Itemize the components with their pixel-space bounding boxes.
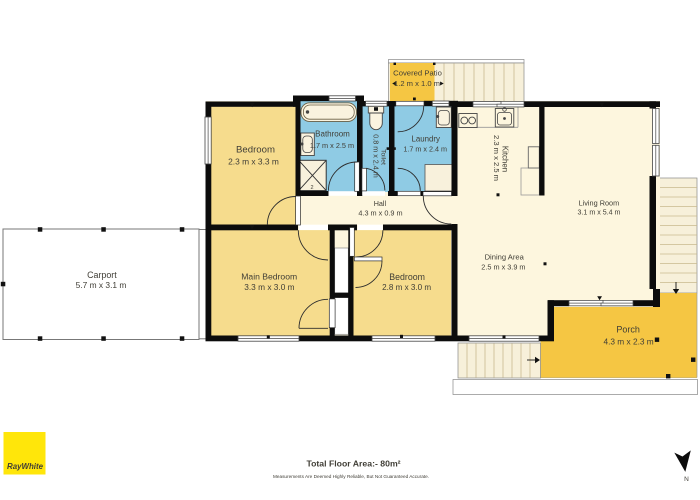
svg-text:2.3 m x 3.3 m: 2.3 m x 3.3 m — [228, 157, 279, 167]
svg-text:5.7 m x 3.1 m: 5.7 m x 3.1 m — [76, 280, 127, 290]
svg-text:N: N — [684, 476, 689, 483]
svg-text:Bedroom: Bedroom — [236, 144, 275, 155]
svg-text:Carport: Carport — [87, 270, 117, 280]
svg-text:1.2 m x 1.0 m: 1.2 m x 1.0 m — [394, 79, 440, 88]
svg-text:2: 2 — [310, 185, 313, 191]
svg-text:2.3 m x 2.5 m: 2.3 m x 2.5 m — [492, 135, 501, 181]
svg-text:3.1 m x 5.4 m: 3.1 m x 5.4 m — [578, 209, 621, 217]
svg-text:Toilet: Toilet — [380, 149, 387, 165]
svg-text:Dining Area: Dining Area — [485, 253, 525, 262]
svg-text:Total Floor Area:- 80m²: Total Floor Area:- 80m² — [306, 459, 400, 469]
svg-text:Measurements Are Deemed Highly: Measurements Are Deemed Highly Reliable,… — [273, 474, 429, 479]
svg-text:Bedroom: Bedroom — [389, 272, 425, 282]
svg-text:2.8 m x 3.0 m: 2.8 m x 3.0 m — [382, 283, 431, 292]
svg-text:4.3 m x 0.9 m: 4.3 m x 0.9 m — [358, 209, 402, 218]
svg-text:Porch: Porch — [616, 325, 640, 335]
svg-text:Bathroom: Bathroom — [315, 130, 350, 139]
svg-text:Main Bedroom: Main Bedroom — [241, 272, 297, 282]
svg-text:Living Room: Living Room — [579, 199, 620, 208]
svg-text:1.7 m x 2.4 m: 1.7 m x 2.4 m — [403, 145, 447, 154]
svg-text:RayWhite: RayWhite — [7, 462, 44, 471]
svg-text:Kitchen: Kitchen — [501, 146, 510, 172]
svg-text:0.8 m x 2.4 m: 0.8 m x 2.4 m — [371, 134, 380, 178]
svg-text:4.3 m x 2.3 m: 4.3 m x 2.3 m — [603, 337, 653, 347]
svg-text:Covered Patio: Covered Patio — [393, 69, 442, 78]
svg-text:Laundry: Laundry — [411, 134, 440, 143]
svg-text:3.3 m x 3.0 m: 3.3 m x 3.0 m — [244, 282, 294, 292]
svg-text:1.7 m x 2.5 m: 1.7 m x 2.5 m — [310, 141, 354, 150]
svg-text:Hall: Hall — [374, 199, 387, 208]
svg-text:2.5 m x 3.9 m: 2.5 m x 3.9 m — [481, 263, 525, 272]
